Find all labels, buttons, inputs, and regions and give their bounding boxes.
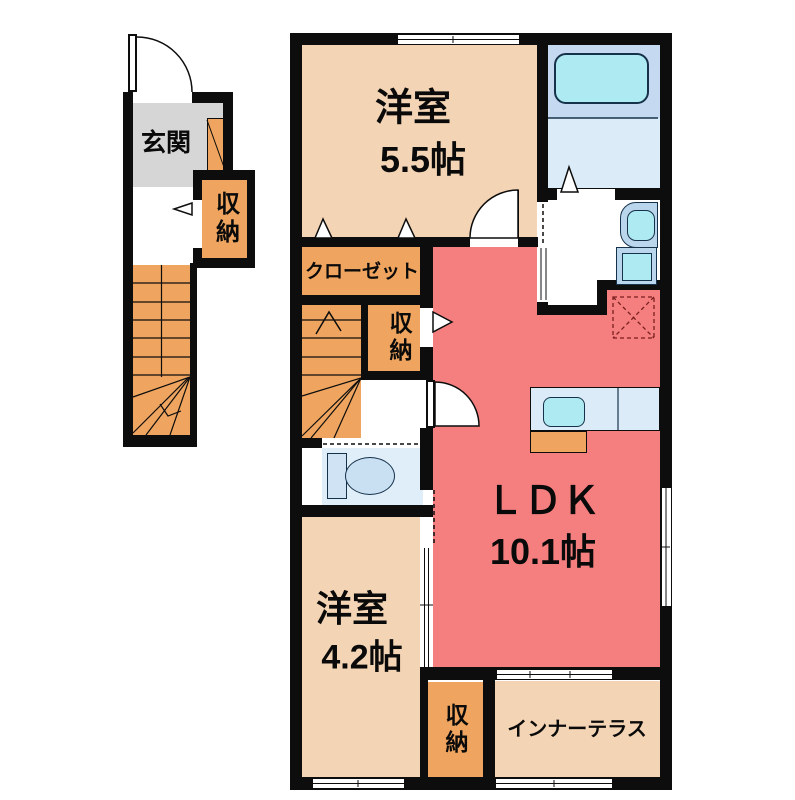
- wall-toilet-top-stub: [302, 438, 322, 448]
- room-western2-name: 洋室: [316, 580, 388, 632]
- entrance-door-leaf: [128, 34, 137, 92]
- toilet-tank: [327, 453, 347, 499]
- washroom-floor-lobe: [548, 290, 597, 305]
- wall-annex-left: [123, 92, 133, 447]
- room-western1-name: 洋室: [375, 77, 451, 132]
- closet-label: クローゼット: [305, 257, 419, 284]
- bedroom1-door-leaf: [510, 190, 519, 238]
- toilet-bowl: [345, 457, 395, 495]
- kitchen-sink: [543, 397, 585, 427]
- wall-stairs-storage: [361, 305, 368, 375]
- wall-closet-bottom: [302, 295, 425, 305]
- floor-plan: 洋室 5.5帖 ＬＤＫ 10.1帖 洋室 4.2帖 玄関 クローゼット 収納 収…: [0, 0, 795, 800]
- staircase-upper-floor: [133, 265, 190, 437]
- wall-storage-bedroom-left: [420, 667, 428, 790]
- room-ldk-size: 10.1帖: [490, 523, 596, 575]
- storage-hall-door-opening: [423, 308, 433, 347]
- stove: [530, 431, 587, 453]
- entrance-door-arc: [137, 37, 192, 92]
- window-ldk-right: [661, 487, 672, 607]
- storage-entrance-label: 収納: [208, 191, 243, 247]
- wall-annex-right-upper: [223, 103, 233, 172]
- staircase-lower-floor: [302, 305, 361, 440]
- ldk-floor-left: [433, 247, 537, 667]
- wall-washroom-step: [597, 280, 607, 315]
- entrance-hall-floor: [133, 187, 190, 265]
- wash-basin-bowl: [627, 210, 655, 241]
- storage-entrance-door-opening: [193, 200, 202, 248]
- window-terrace-bottom: [495, 778, 613, 789]
- entrance-door-opening: [133, 92, 192, 103]
- entrance-label: 玄関: [141, 123, 191, 159]
- bathtub: [554, 53, 649, 104]
- room-western1-size: 5.5帖: [380, 131, 466, 183]
- wall-annex-right-lower: [190, 263, 197, 435]
- washroom-door-strip: [538, 202, 548, 302]
- bathroom-floor: [548, 118, 660, 188]
- wall-annex-bottom: [123, 435, 197, 447]
- wall-storage-hall: [361, 371, 425, 380]
- window-terrace-top: [496, 669, 613, 680]
- room-western2-size: 4.2帖: [321, 630, 402, 679]
- wall-divider-low: [420, 428, 433, 490]
- sliding-door-bedroom2: [421, 548, 432, 667]
- window-bedroom2-bottom: [312, 778, 405, 789]
- wall-main-left: [290, 33, 302, 790]
- room-ldk-name: ＬＤＫ: [486, 470, 600, 525]
- wall-storage-terrace: [483, 680, 495, 777]
- wall-bath-left: [537, 33, 548, 202]
- wall-bedroom1-bottom-left: [290, 237, 470, 247]
- bath-door-opening: [557, 189, 615, 200]
- wall-toilet-bottom: [290, 505, 433, 517]
- terrace-label: インナーテラス: [507, 713, 647, 742]
- window-bedroom1-top: [397, 34, 520, 45]
- ldk-floor-fridge-corner: [607, 290, 660, 315]
- hallway-floor: [368, 380, 420, 438]
- hallway-door-leaf: [426, 380, 435, 428]
- washing-machine-pan-inner: [622, 253, 652, 281]
- storage-bedroom-label: 収納: [438, 703, 472, 757]
- storage-hall-label: 収納: [382, 311, 416, 365]
